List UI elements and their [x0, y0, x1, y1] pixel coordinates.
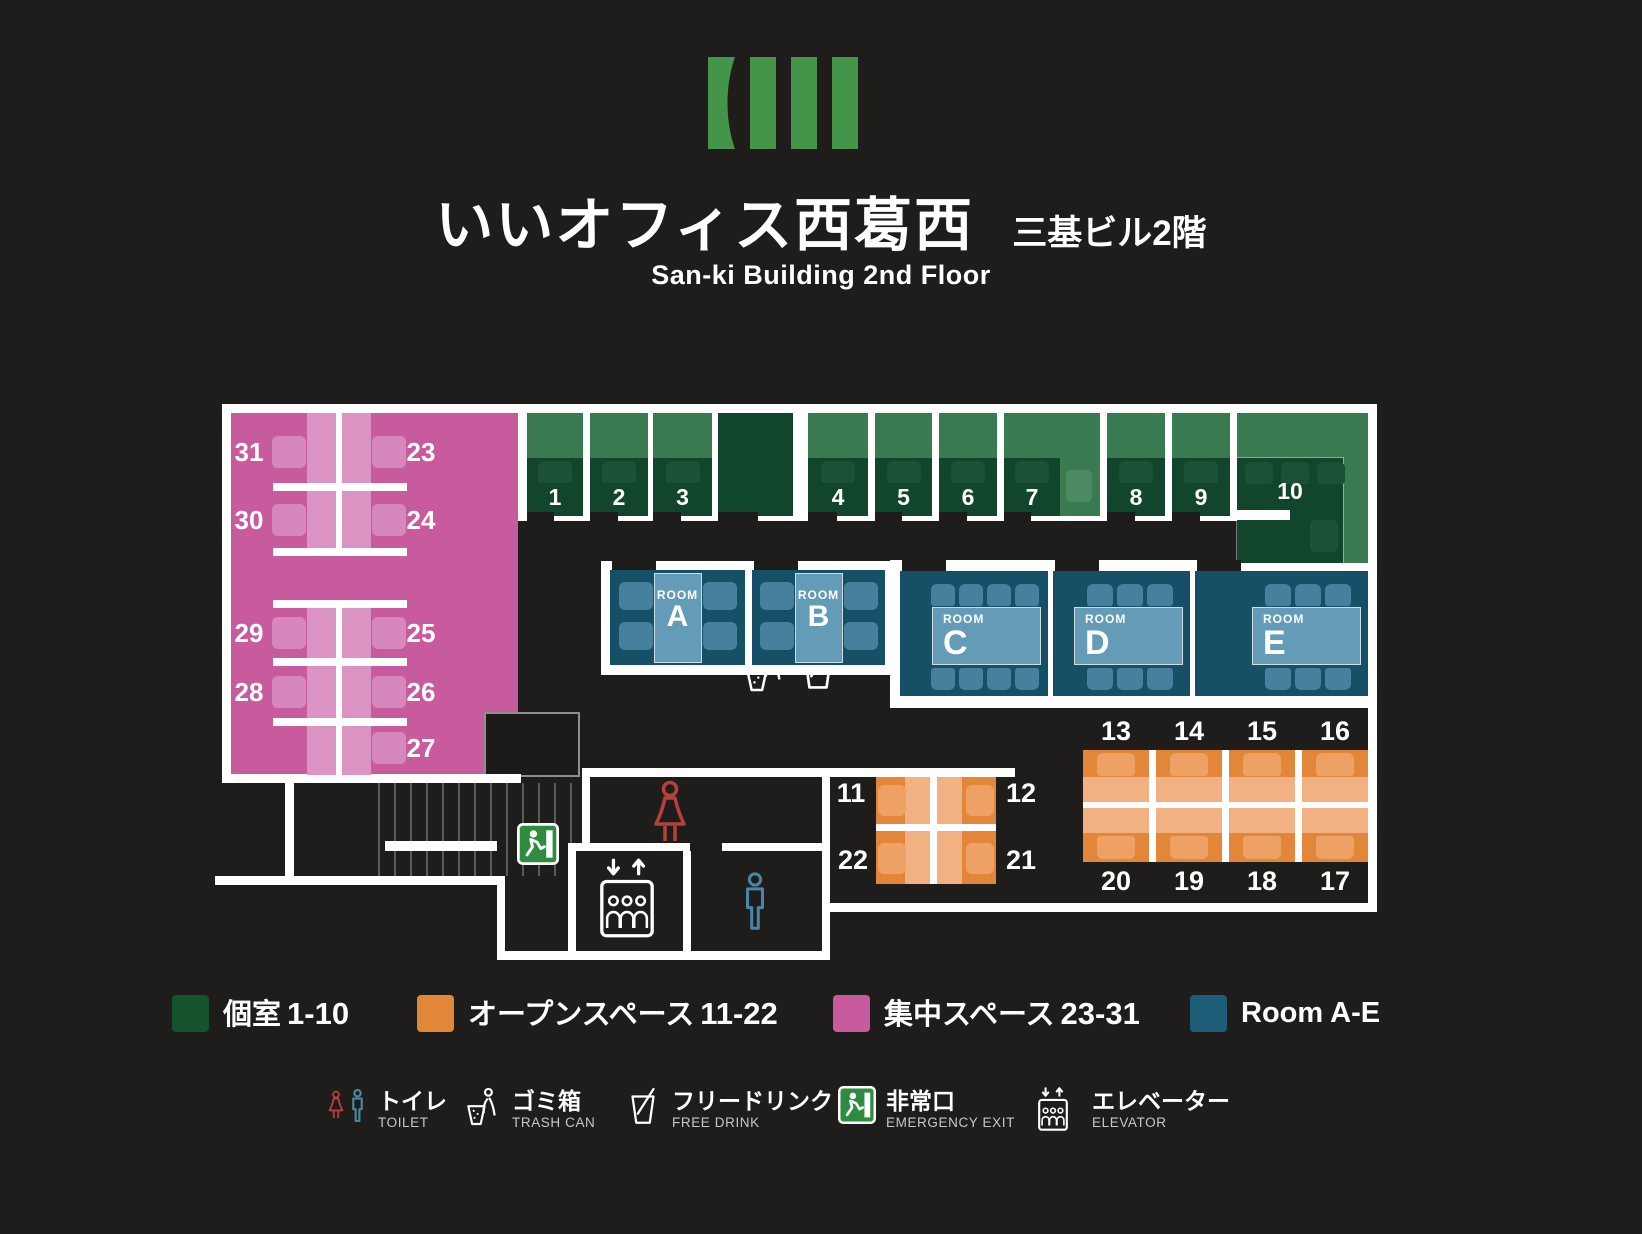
open-seat-number: 12 [1000, 779, 1042, 807]
chair-icon [844, 622, 878, 650]
room-D-label: ROOMD [1085, 612, 1175, 660]
door-gap [653, 512, 681, 521]
chair-icon [1265, 584, 1291, 606]
chair-icon [931, 668, 955, 690]
desk-divider [273, 600, 407, 608]
open-desk [1302, 808, 1368, 833]
chair-icon [1243, 836, 1281, 859]
storage-closet [484, 712, 580, 777]
chair-icon [619, 622, 653, 650]
legend-swatch [172, 995, 209, 1032]
door-gap [939, 512, 967, 521]
chair-icon [1295, 584, 1321, 606]
booth-number: 10 [1237, 478, 1343, 504]
wall [582, 768, 1015, 777]
booth-number: 4 [808, 484, 868, 510]
booth-number: 7 [1004, 484, 1060, 510]
open-desk [1156, 808, 1222, 833]
focus-seat-number: 27 [400, 734, 442, 762]
chair-icon [821, 461, 855, 483]
wall [1368, 404, 1377, 912]
zone-legend: 個室1-10オープンスペース11-22集中スペース23-31Room A-E [0, 993, 1642, 1037]
booth-number: 5 [875, 484, 932, 510]
desk-divider [273, 483, 407, 491]
booth-number: 9 [1172, 484, 1230, 510]
chair-icon [1170, 753, 1208, 776]
chair-icon [272, 504, 306, 536]
chair-icon [1310, 520, 1338, 552]
door-gap [612, 561, 656, 570]
chair-icon [987, 668, 1011, 690]
floor-plan: 12345678910312330242925282627ROOMAROOMBR… [0, 0, 1642, 1234]
chair-icon [1117, 668, 1143, 690]
facility-label: エレベーターELEVATOR [1092, 1088, 1312, 1136]
room-E-label: ROOME [1263, 612, 1353, 660]
chair-icon [878, 843, 906, 874]
open-desk [1083, 808, 1149, 833]
open-seat-number: 19 [1156, 866, 1222, 896]
legend-swatch [1190, 995, 1227, 1032]
legend-swatch [833, 995, 870, 1032]
chair-icon [1097, 836, 1135, 859]
chair-icon [1119, 461, 1153, 483]
door-gap [808, 512, 837, 521]
door-gap [1197, 560, 1241, 571]
open-desk [937, 831, 962, 884]
legend-zone-label: 集中スペース23-31 [884, 993, 1140, 1034]
stair-landing [385, 841, 497, 851]
door-gap [754, 561, 798, 570]
legend-zone-label: Room A-E [1241, 993, 1380, 1034]
chair-icon [1147, 668, 1173, 690]
open-desk [1083, 777, 1149, 802]
desk-divider [273, 718, 407, 726]
chair-icon [703, 582, 737, 610]
open-desk [905, 831, 930, 884]
facility-label-ja: エレベーター [1092, 1088, 1312, 1114]
wall [497, 951, 830, 960]
chair-icon [951, 461, 985, 483]
open-desk [1229, 808, 1295, 833]
focus-seat-number: 30 [228, 506, 270, 534]
focus-seat-number: 26 [400, 678, 442, 706]
legend-zone-label: オープンスペース11-22 [468, 993, 778, 1034]
wall [822, 768, 830, 960]
room-C-label: ROOMC [943, 612, 1033, 660]
focus-seat-number: 23 [400, 438, 442, 466]
focus-seat-number: 25 [400, 619, 442, 647]
elevator-icon [1036, 1086, 1092, 1136]
chair-icon [703, 622, 737, 650]
desk-divider [336, 600, 342, 775]
floor-map-page: いいオフィス西葛西三基ビル2階 San-ki Building 2nd Floo… [0, 0, 1642, 1234]
door-gap [1055, 560, 1099, 571]
door-gap [718, 512, 758, 521]
chair-icon [272, 617, 306, 649]
chair-icon [1087, 584, 1113, 606]
open-seat-number: 13 [1083, 716, 1149, 746]
wall [222, 404, 1377, 413]
chair-icon [619, 582, 653, 610]
door-gap [1172, 512, 1200, 521]
wall [575, 843, 690, 851]
chair-icon [1316, 836, 1354, 859]
chair-icon [760, 622, 794, 650]
open-seat-number: 11 [830, 779, 872, 807]
legend-zone-label: 個室1-10 [223, 993, 349, 1034]
open-seat-number: 17 [1302, 866, 1368, 896]
chair-icon [602, 461, 636, 483]
chair-icon [1170, 836, 1208, 859]
chair-icon [1295, 668, 1321, 690]
chair-icon [1117, 584, 1143, 606]
booth-number: 6 [939, 484, 997, 510]
chair-icon [1316, 753, 1354, 776]
chair-icon [272, 676, 306, 708]
open-seat-number: 14 [1156, 716, 1222, 746]
door-gap [590, 512, 618, 521]
chair-icon [987, 584, 1011, 606]
emergency-exit-icon [517, 823, 559, 865]
open-seat-number: 18 [1229, 866, 1295, 896]
chair-icon [887, 461, 921, 483]
door-gap [527, 512, 554, 521]
chair-icon [1243, 753, 1281, 776]
chair-icon [666, 461, 700, 483]
elevator-icon [596, 856, 658, 940]
wall [497, 876, 505, 960]
booth-number: 8 [1107, 484, 1165, 510]
facility-legend: トイレTOILETゴミ箱TRASH CANフリードリンクFREE DRINK非常… [0, 1080, 1642, 1142]
open-desk [1156, 777, 1222, 802]
facility-label-en: ELEVATOR [1092, 1114, 1312, 1132]
chair-icon [1066, 470, 1092, 502]
wall [568, 843, 576, 956]
desk-divider [273, 548, 407, 556]
toilet-icon [326, 1086, 382, 1136]
chair-icon [1325, 668, 1351, 690]
wall [582, 768, 590, 851]
booth-number: 1 [527, 484, 583, 510]
chair-icon [1015, 584, 1039, 606]
open-desk [937, 777, 962, 824]
wall [822, 903, 1377, 912]
chair-icon [760, 582, 794, 610]
chair-icon [1015, 461, 1049, 483]
focus-seat-number: 29 [228, 619, 270, 647]
chair-icon [1015, 668, 1039, 690]
chair-icon [1097, 753, 1135, 776]
chair-icon [1265, 668, 1291, 690]
desk-divider [273, 658, 407, 666]
chair-icon [1325, 584, 1351, 606]
chair-icon [931, 584, 955, 606]
wall [1237, 510, 1290, 520]
booth-number: 2 [590, 484, 648, 510]
chair-icon [959, 668, 983, 690]
chair-icon [1087, 668, 1113, 690]
booth-alcove [718, 413, 793, 516]
mens-toilet-icon [739, 872, 771, 932]
booth-number: 3 [653, 484, 712, 510]
focus-seat-number: 28 [228, 678, 270, 706]
door-gap [902, 560, 946, 571]
door-gap [875, 512, 902, 521]
open-seat-number: 22 [832, 846, 874, 874]
wall [722, 843, 830, 851]
open-desk [1302, 777, 1368, 802]
focus-seat-number: 24 [400, 506, 442, 534]
chair-icon [1147, 584, 1173, 606]
desk-divider [930, 777, 937, 884]
chair-icon [878, 785, 906, 816]
womens-toilet-icon [648, 780, 692, 844]
chair-icon [966, 785, 994, 816]
wall [215, 876, 505, 885]
legend-swatch [417, 995, 454, 1032]
open-desk [1229, 777, 1295, 802]
focus-seat-number: 31 [228, 438, 270, 466]
wall [285, 774, 294, 884]
door-gap [1107, 512, 1135, 521]
chair-icon [844, 582, 878, 610]
open-seat-number: 20 [1083, 866, 1149, 896]
chair-icon [538, 461, 572, 483]
door-gap [1004, 512, 1031, 521]
room-B-label: ROOMB [796, 588, 842, 632]
open-seat-number: 16 [1302, 716, 1368, 746]
open-desk [905, 777, 930, 824]
wall [683, 851, 691, 956]
open-seat-number: 21 [1000, 846, 1042, 874]
chair-icon [1184, 461, 1218, 483]
room-A-label: ROOMA [655, 588, 701, 632]
chair-icon [966, 843, 994, 874]
chair-icon [959, 584, 983, 606]
chair-icon [272, 436, 306, 468]
wall [222, 774, 521, 783]
open-seat-number: 15 [1229, 716, 1295, 746]
